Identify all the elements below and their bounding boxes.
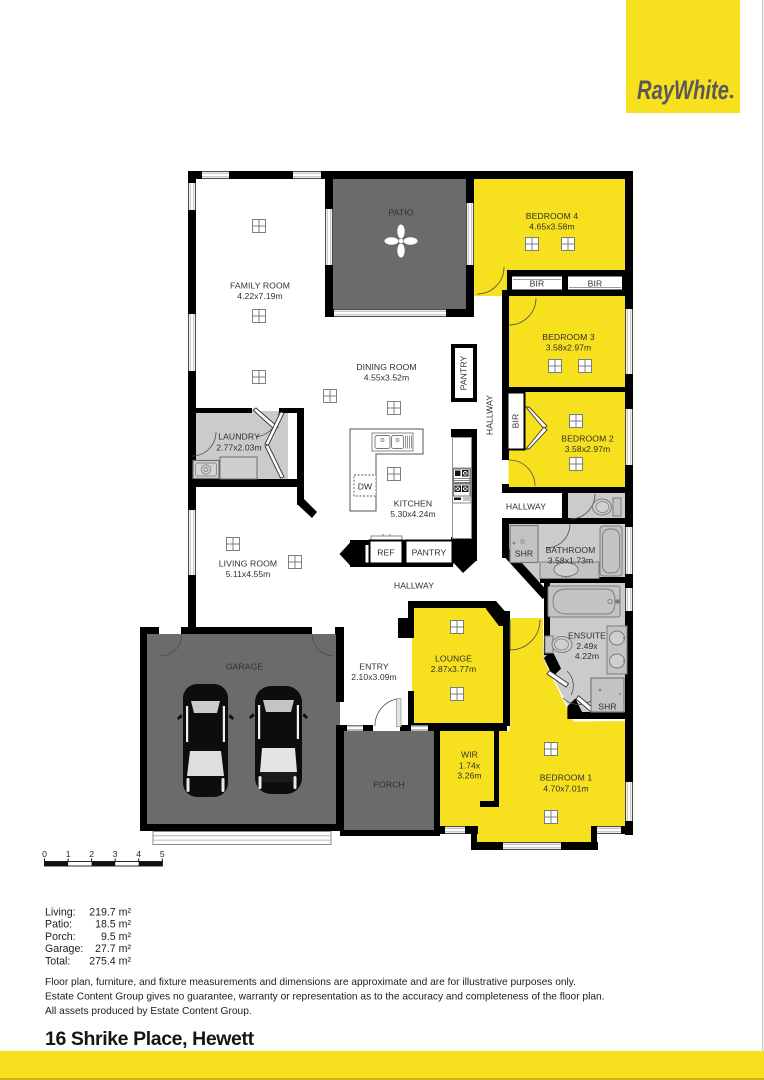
- svg-text:4.70x7.01m: 4.70x7.01m: [543, 784, 588, 794]
- svg-text:WIR: WIR: [461, 750, 478, 760]
- svg-text:9.5 m²: 9.5 m²: [101, 931, 131, 943]
- svg-text:3.58x2.97m: 3.58x2.97m: [565, 444, 610, 454]
- svg-text:ENSUITE: ENSUITE: [568, 631, 606, 641]
- svg-text:3.58x2.97m: 3.58x2.97m: [546, 343, 591, 353]
- svg-text:0: 0: [42, 849, 47, 859]
- svg-text:2: 2: [89, 849, 94, 859]
- svg-text:HALLWAY: HALLWAY: [506, 502, 546, 512]
- svg-text:BEDROOM 3: BEDROOM 3: [542, 332, 595, 342]
- svg-text:BEDROOM 2: BEDROOM 2: [561, 434, 614, 444]
- svg-text:275.4 m²: 275.4 m²: [89, 956, 131, 968]
- svg-text:18.5 m²: 18.5 m²: [95, 919, 131, 931]
- svg-text:4.22m: 4.22m: [575, 651, 599, 661]
- svg-text:BEDROOM 1: BEDROOM 1: [540, 773, 593, 783]
- svg-text:All assets produced by Estate: All assets produced by Estate Content Gr…: [45, 1006, 252, 1017]
- svg-text:3: 3: [113, 849, 118, 859]
- svg-text:2.87x3.77m: 2.87x3.77m: [431, 664, 476, 674]
- svg-text:RayWhite: RayWhite: [637, 75, 729, 105]
- svg-text:5: 5: [160, 849, 165, 859]
- svg-text:4.55x3.52m: 4.55x3.52m: [364, 373, 409, 383]
- svg-text:ENTRY: ENTRY: [359, 662, 389, 672]
- svg-text:PANTRY: PANTRY: [458, 356, 468, 391]
- svg-text:2.77x2.03m: 2.77x2.03m: [216, 443, 261, 453]
- svg-text:GARAGE: GARAGE: [226, 662, 264, 672]
- svg-text:3.26m: 3.26m: [457, 771, 481, 781]
- svg-text:Porch:: Porch:: [45, 931, 76, 943]
- svg-text:DINING ROOM: DINING ROOM: [356, 362, 416, 372]
- svg-text:4: 4: [136, 849, 141, 859]
- svg-text:BEDROOM 4: BEDROOM 4: [526, 211, 579, 221]
- svg-text:Living:: Living:: [45, 906, 76, 918]
- svg-text:BIR: BIR: [588, 279, 603, 289]
- svg-text:27.7 m²: 27.7 m²: [95, 943, 131, 955]
- svg-text:FAMILY ROOM: FAMILY ROOM: [230, 281, 290, 291]
- svg-text:16 Shrike Place, Hewett: 16 Shrike Place, Hewett: [45, 1028, 255, 1050]
- svg-text:1.74x: 1.74x: [459, 761, 481, 771]
- svg-text:PANTRY: PANTRY: [412, 548, 447, 558]
- svg-text:4.22x7.19m: 4.22x7.19m: [237, 291, 282, 301]
- svg-text:KITCHEN: KITCHEN: [394, 499, 432, 509]
- svg-text:Patio:: Patio:: [45, 919, 72, 931]
- svg-text:REF: REF: [377, 548, 395, 558]
- svg-text:Garage:: Garage:: [45, 943, 83, 955]
- svg-text:2.10x3.09m: 2.10x3.09m: [351, 672, 396, 682]
- svg-text:BATHROOM: BATHROOM: [546, 545, 596, 555]
- svg-text:DW: DW: [358, 482, 373, 492]
- svg-text:PATIO: PATIO: [388, 208, 413, 218]
- svg-text:HALLWAY: HALLWAY: [484, 395, 494, 435]
- svg-text:219.7 m²: 219.7 m²: [89, 906, 131, 918]
- svg-text:1: 1: [66, 849, 71, 859]
- svg-text:LIVING ROOM: LIVING ROOM: [219, 559, 277, 569]
- svg-text:SHR: SHR: [598, 702, 616, 712]
- svg-text:5.30x4.24m: 5.30x4.24m: [390, 509, 435, 519]
- svg-text:Estate Content Group gives no: Estate Content Group gives no guarantee,…: [45, 992, 605, 1003]
- svg-text:Total:: Total:: [45, 956, 70, 968]
- svg-text:2.49x: 2.49x: [576, 641, 598, 651]
- svg-text:LAUNDRY: LAUNDRY: [218, 432, 260, 442]
- svg-text:SHR: SHR: [515, 549, 533, 559]
- svg-text:BIR: BIR: [510, 414, 520, 429]
- svg-text:BIR: BIR: [530, 279, 545, 289]
- svg-text:3.58x1.73m: 3.58x1.73m: [548, 556, 593, 566]
- svg-text:4.65x3.58m: 4.65x3.58m: [529, 222, 574, 232]
- svg-text:LOUNGE: LOUNGE: [435, 654, 472, 664]
- svg-text:HALLWAY: HALLWAY: [394, 581, 434, 591]
- svg-text:PORCH: PORCH: [373, 780, 405, 790]
- svg-text:Floor plan, furniture, and fix: Floor plan, furniture, and fixture measu…: [45, 977, 576, 988]
- svg-text:5.11x4.55m: 5.11x4.55m: [226, 569, 271, 579]
